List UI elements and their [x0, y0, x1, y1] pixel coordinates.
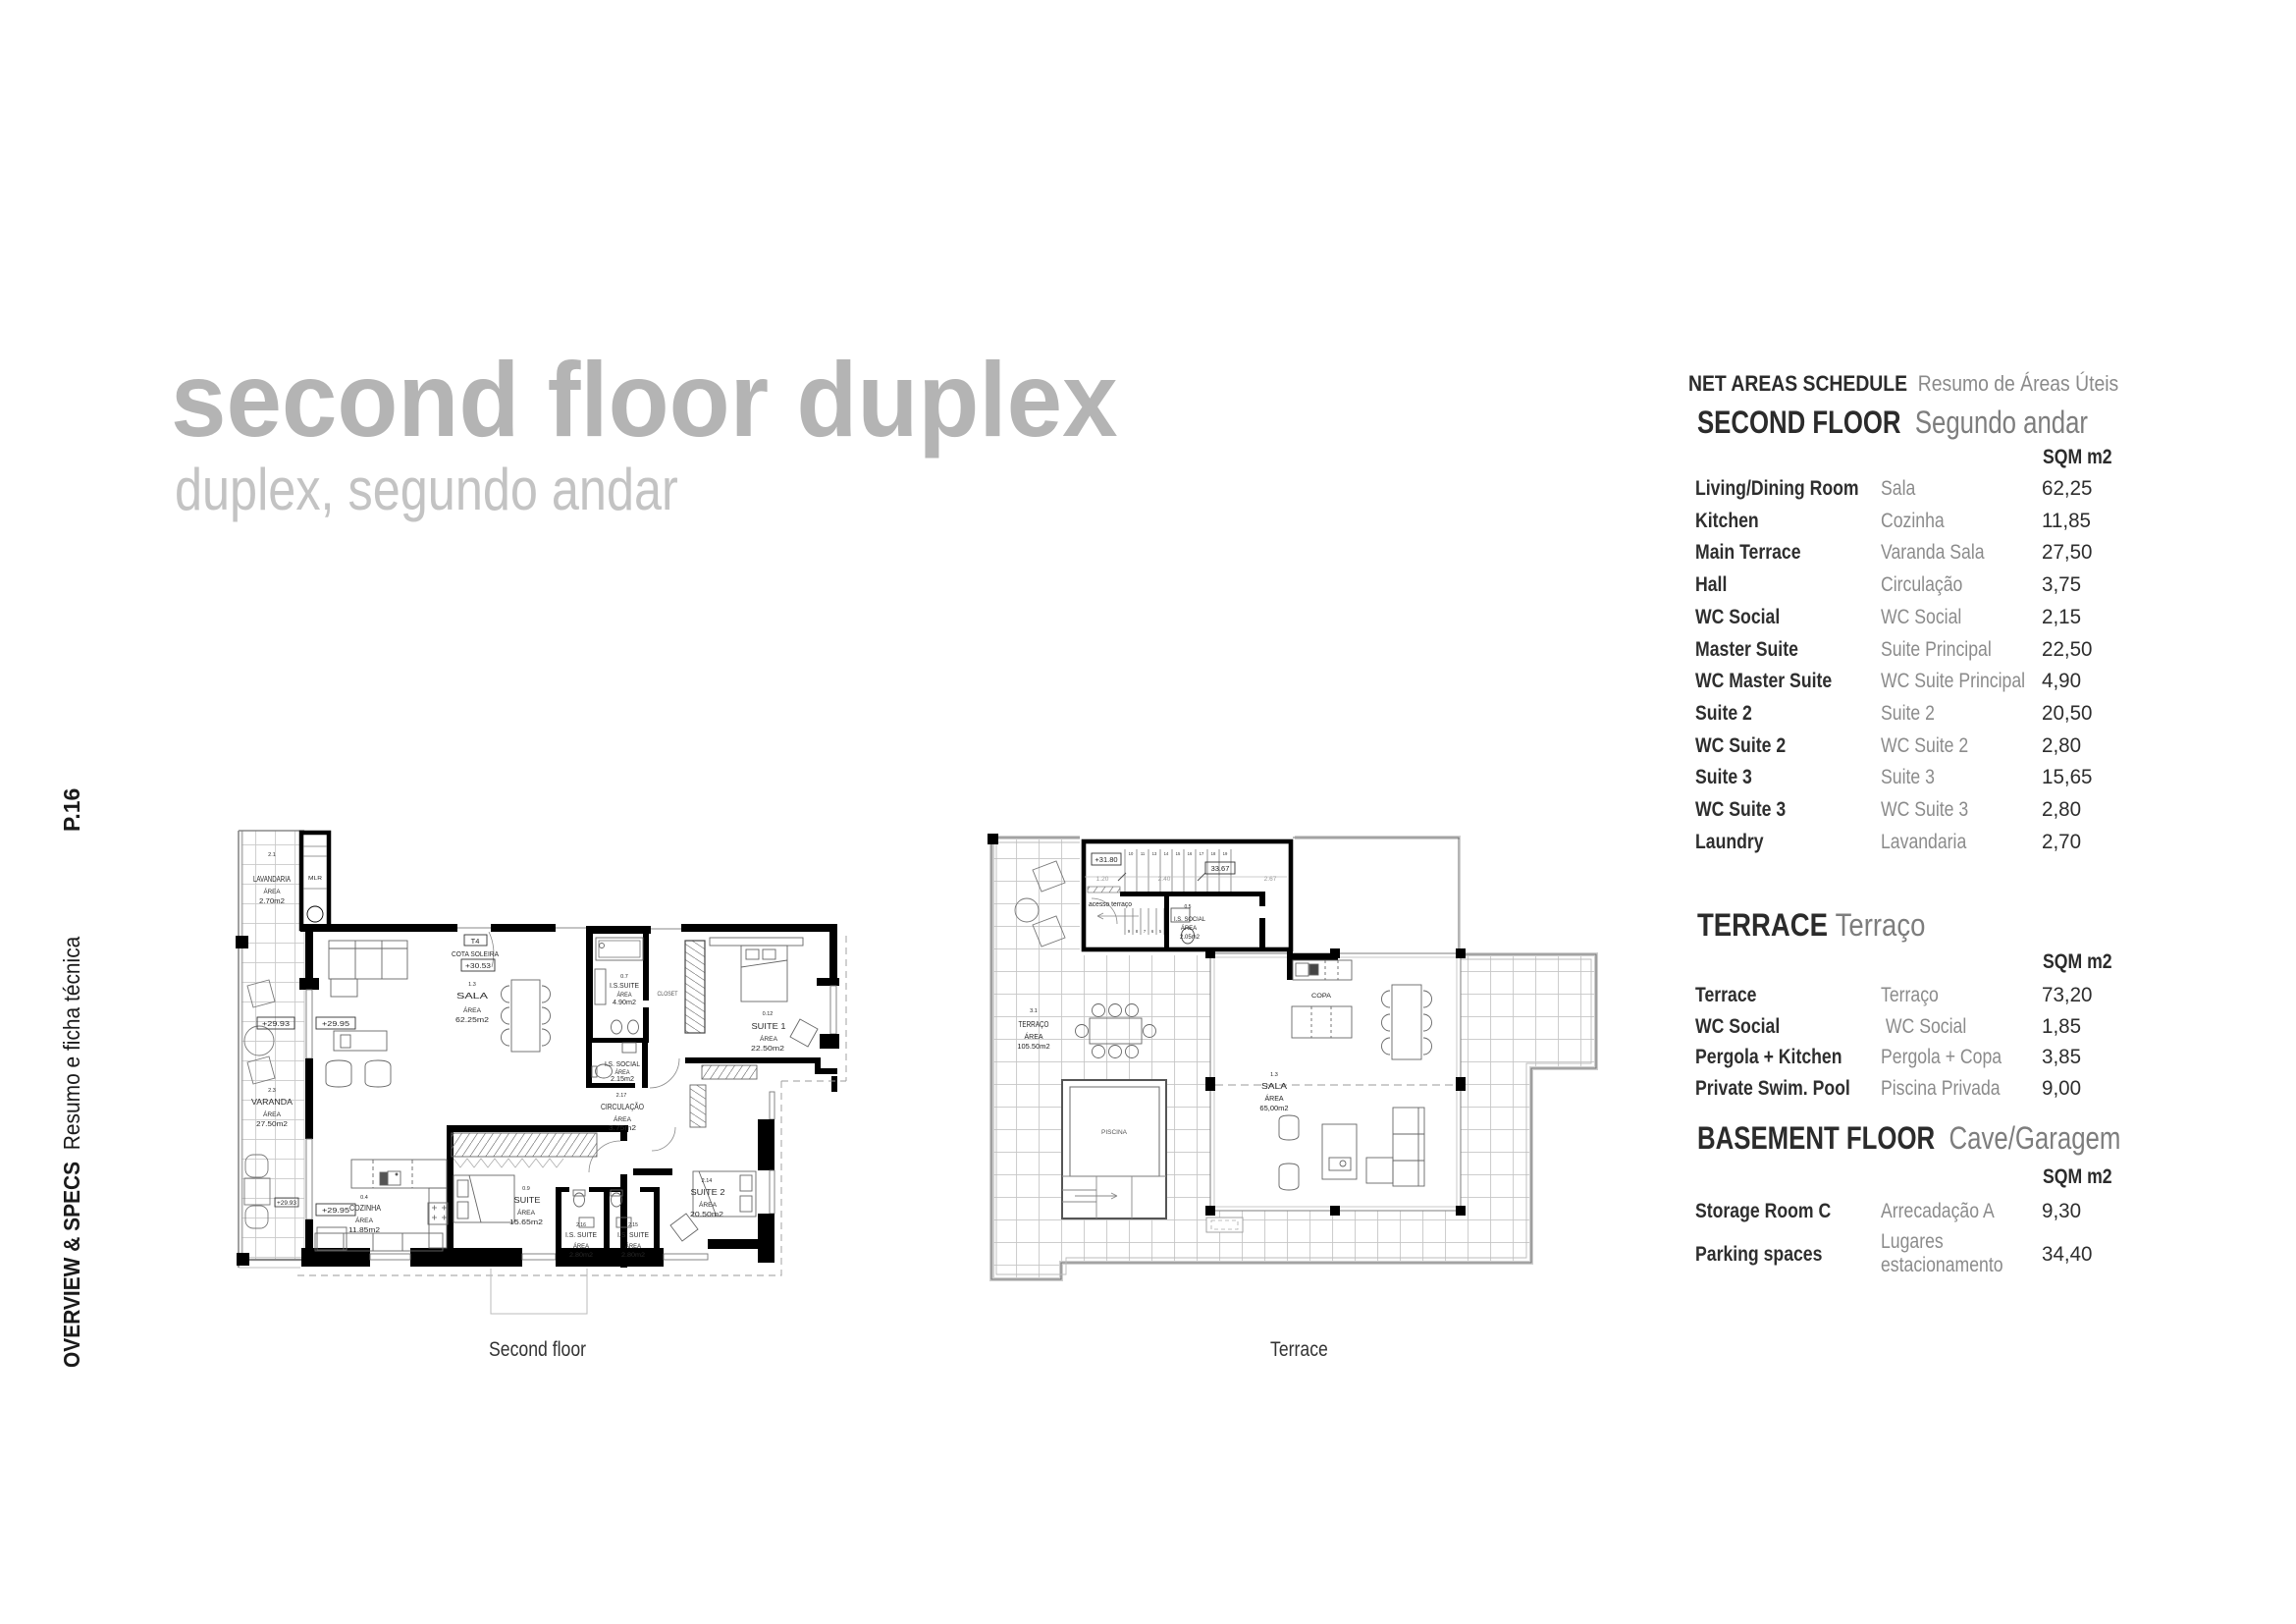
svg-text:105.50m2: 105.50m2	[1017, 1042, 1049, 1051]
svg-text:SUITE 1: SUITE 1	[752, 1021, 786, 1031]
svg-text:SUITE 2: SUITE 2	[691, 1187, 725, 1197]
svg-text:TERRAÇO: TERRAÇO	[1019, 1020, 1049, 1029]
svg-text:2.80m2: 2.80m2	[621, 1252, 645, 1259]
svg-text:+30.53: +30.53	[465, 961, 491, 970]
svg-text:I.S. SUITE: I.S. SUITE	[617, 1232, 649, 1239]
svg-text:ÁREA: ÁREA	[517, 1208, 536, 1217]
svg-text:20.50m2: 20.50m2	[690, 1210, 723, 1218]
svg-text:2.17: 2.17	[616, 1093, 627, 1099]
svg-text:ÁREA: ÁREA	[463, 1005, 482, 1014]
svg-text:19: 19	[1223, 851, 1228, 856]
svg-text:I.S. SOCIAL: I.S. SOCIAL	[605, 1059, 640, 1068]
svg-text:COZINHA: COZINHA	[349, 1204, 382, 1213]
svg-text:COTA SOLEIRA: COTA SOLEIRA	[452, 951, 499, 958]
svg-text:ÁREA: ÁREA	[617, 990, 633, 999]
svg-text:2.40: 2.40	[1158, 876, 1171, 883]
svg-text:ÁREA: ÁREA	[1181, 925, 1197, 932]
svg-text:16: 16	[1188, 851, 1193, 856]
svg-text:+29.95: +29.95	[322, 1019, 349, 1028]
svg-text:ÁREA: ÁREA	[263, 1110, 282, 1118]
svg-text:33.67: 33.67	[1211, 864, 1230, 873]
svg-text:3.1: 3.1	[1030, 1008, 1038, 1014]
svg-text:0.9: 0.9	[522, 1186, 530, 1192]
svg-text:10: 10	[1129, 851, 1134, 856]
svg-text:2.15m2: 2.15m2	[611, 1076, 634, 1083]
svg-text:ÁREA: ÁREA	[1264, 1094, 1283, 1103]
svg-text:ÁREA: ÁREA	[573, 1243, 589, 1250]
svg-text:65,00m2: 65,00m2	[1259, 1104, 1288, 1112]
svg-text:0.5: 0.5	[1185, 904, 1192, 910]
svg-text:CIRCULAÇÃO: CIRCULAÇÃO	[601, 1103, 644, 1111]
svg-text:62.25m2: 62.25m2	[455, 1015, 489, 1024]
svg-text:11: 11	[1141, 851, 1146, 856]
svg-text:2.67: 2.67	[1264, 876, 1277, 883]
svg-text:0.7: 0.7	[620, 974, 628, 980]
svg-text:+29.93: +29.93	[262, 1019, 290, 1028]
svg-text:PISCINA: PISCINA	[1101, 1130, 1127, 1136]
svg-text:2.15: 2.15	[628, 1222, 638, 1228]
svg-text:ÁREA: ÁREA	[614, 1114, 632, 1123]
svg-text:15: 15	[1176, 851, 1181, 856]
svg-text:I.S.SUITE: I.S.SUITE	[610, 981, 639, 990]
svg-text:ÁREA: ÁREA	[355, 1216, 374, 1224]
svg-text:VARANDA: VARANDA	[251, 1098, 294, 1107]
svg-text:COPA: COPA	[1311, 993, 1332, 1000]
svg-text:13: 13	[1152, 851, 1157, 856]
svg-text:CLOSET: CLOSET	[658, 992, 678, 998]
svg-text:ÁREA: ÁREA	[625, 1243, 641, 1250]
svg-text:0.12: 0.12	[763, 1011, 774, 1017]
svg-text:1.3: 1.3	[468, 982, 476, 988]
svg-text:ÁREA: ÁREA	[1024, 1032, 1042, 1041]
svg-text:2.16: 2.16	[576, 1222, 586, 1228]
svg-text:SALA: SALA	[1261, 1081, 1287, 1091]
svg-text:I.S. SUITE: I.S. SUITE	[565, 1232, 597, 1239]
svg-text:+29.95: +29.95	[322, 1206, 349, 1215]
svg-text:2.70m2: 2.70m2	[259, 898, 285, 905]
svg-text:4.90m2: 4.90m2	[613, 1000, 636, 1006]
svg-text:+29.93: +29.93	[277, 1201, 297, 1207]
svg-text:3.75m2: 3.75m2	[609, 1123, 636, 1132]
svg-text:27.50m2: 27.50m2	[256, 1119, 288, 1128]
svg-text:2.05m2: 2.05m2	[1180, 935, 1201, 941]
svg-text:2.80m2: 2.80m2	[569, 1252, 593, 1259]
svg-text:2.3: 2.3	[268, 1088, 276, 1094]
svg-text:SUITE: SUITE	[514, 1195, 541, 1205]
svg-text:T4: T4	[471, 937, 480, 946]
svg-text:ÁREA: ÁREA	[699, 1200, 718, 1209]
svg-text:15.65m2: 15.65m2	[509, 1218, 543, 1226]
svg-text:I.S. SOCIAL: I.S. SOCIAL	[1174, 916, 1205, 923]
svg-text:SALA: SALA	[456, 991, 488, 1001]
svg-text:+31.80: +31.80	[1095, 855, 1117, 864]
svg-text:ÁREA: ÁREA	[615, 1067, 631, 1076]
svg-text:acesso terraço: acesso terraço	[1089, 901, 1132, 908]
svg-text:11.85m2: 11.85m2	[348, 1225, 380, 1234]
svg-text:ÁREA: ÁREA	[760, 1034, 778, 1043]
svg-text:17: 17	[1200, 851, 1204, 856]
svg-text:22.50m2: 22.50m2	[751, 1044, 784, 1053]
svg-text:MLR: MLR	[308, 876, 322, 882]
svg-text:1.20: 1.20	[1096, 876, 1109, 883]
svg-text:18: 18	[1211, 851, 1216, 856]
svg-text:0.4: 0.4	[360, 1195, 368, 1201]
svg-text:ÁREA: ÁREA	[264, 887, 282, 895]
svg-text:LAVANDARIA: LAVANDARIA	[253, 875, 292, 884]
svg-text:2.1: 2.1	[268, 852, 276, 858]
svg-text:1.3: 1.3	[1270, 1072, 1278, 1078]
svg-text:14: 14	[1164, 851, 1169, 856]
svg-text:2.14: 2.14	[702, 1178, 713, 1184]
